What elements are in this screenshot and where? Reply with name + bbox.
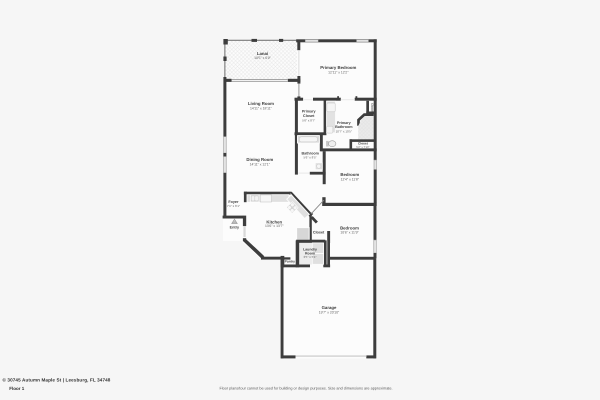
svg-text:Entry: Entry <box>230 226 240 230</box>
svg-text:Closet: Closet <box>303 114 315 118</box>
svg-text:7'1" x 6'1": 7'1" x 6'1" <box>227 204 240 208</box>
svg-text:Floor plans/tour cannot be use: Floor plans/tour cannot be used for buil… <box>219 386 392 390</box>
svg-text:Bathroom: Bathroom <box>335 125 353 129</box>
svg-text:Primary: Primary <box>302 110 317 114</box>
svg-text:10'6" x 11'9": 10'6" x 11'9" <box>340 231 359 235</box>
svg-text:14'11" x 18'11": 14'11" x 18'11" <box>250 106 273 110</box>
svg-text:19'7" x 20'10": 19'7" x 20'10" <box>319 310 340 314</box>
svg-text:10'5" x 6'9": 10'5" x 6'9" <box>254 56 272 60</box>
svg-text:Bedroom: Bedroom <box>340 225 359 230</box>
svg-text:10'7" x 10'5": 10'7" x 10'5" <box>336 130 352 134</box>
svg-text:Garage: Garage <box>322 305 337 310</box>
svg-text:Living Room: Living Room <box>248 101 274 106</box>
svg-text:5'2" x 7'10": 5'2" x 7'10" <box>356 146 369 149</box>
svg-text:Primary Bedroom: Primary Bedroom <box>320 65 356 70</box>
svg-text:Closet: Closet <box>313 231 325 235</box>
svg-text:12'4" x 11'8": 12'4" x 11'8" <box>341 178 360 182</box>
svg-text:Closet: Closet <box>358 142 369 146</box>
svg-text:3'5" x 5'1": 3'5" x 5'1" <box>303 255 316 259</box>
svg-text:14'11" x 12'1": 14'11" x 12'1" <box>250 162 271 166</box>
svg-text:Floor 1: Floor 1 <box>9 386 24 391</box>
svg-text:5'6" x 8'5": 5'6" x 8'5" <box>303 155 316 159</box>
svg-text:Pantry: Pantry <box>285 259 295 263</box>
svg-text:12'11" x 12'2": 12'11" x 12'2" <box>328 71 349 75</box>
svg-text:Bedroom: Bedroom <box>340 172 359 177</box>
svg-text:5'6" x 8'7": 5'6" x 8'7" <box>302 119 315 123</box>
svg-text:13'6" x 13'7": 13'6" x 13'7" <box>265 224 284 228</box>
svg-text:Primary: Primary <box>337 121 352 125</box>
svg-text:Closet: Closet <box>370 103 374 112</box>
